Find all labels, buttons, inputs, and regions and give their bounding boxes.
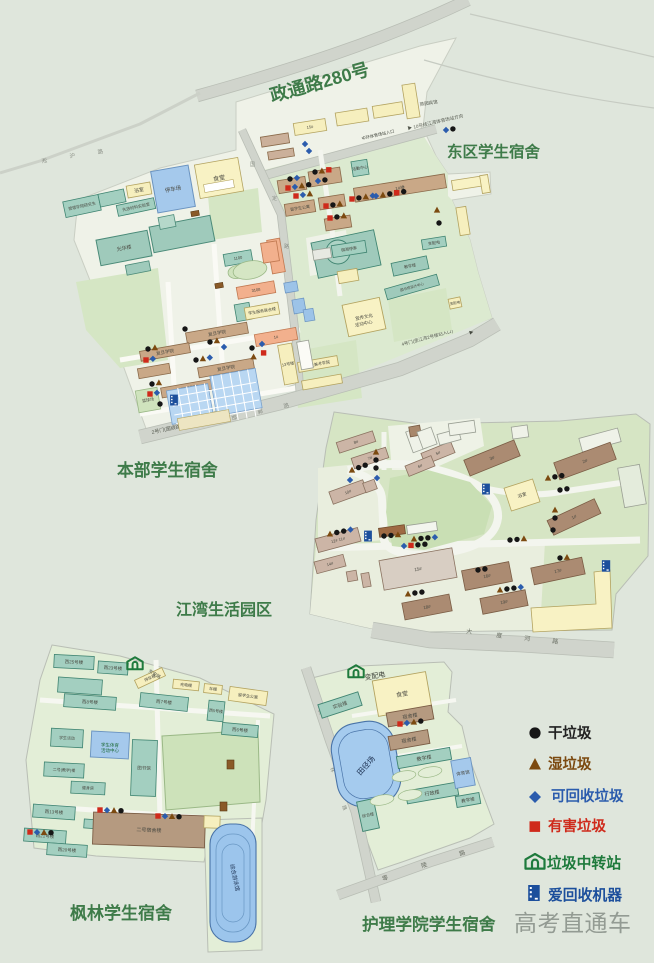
- svg-text:二号(教学)楼: 二号(教学)楼: [53, 766, 76, 773]
- svg-text:定: 定: [272, 195, 277, 202]
- svg-text:车棚: 车棚: [209, 685, 218, 692]
- svg-text:本部学生宿舍: 本部学生宿舍: [117, 460, 218, 480]
- svg-text:路: 路: [284, 243, 289, 250]
- svg-text:健身房: 健身房: [82, 784, 94, 791]
- svg-text:二号宿舍楼: 二号宿舍楼: [136, 826, 161, 834]
- svg-text:充电棚: 充电棚: [180, 681, 193, 688]
- svg-text:护理学院学生宿舍: 护理学院学生宿舍: [362, 914, 496, 934]
- svg-text:垃圾中转站: 垃圾中转站: [547, 854, 621, 872]
- svg-text:可回收垃圾: 可回收垃圾: [551, 787, 624, 805]
- svg-text:有害垃圾: 有害垃圾: [548, 817, 606, 835]
- svg-text:枫林学生宿舍: 枫林学生宿舍: [70, 903, 172, 923]
- svg-text:干垃圾: 干垃圾: [548, 724, 592, 742]
- svg-text:国: 国: [250, 162, 255, 168]
- svg-text:高考直通车: 高考直通车: [514, 910, 632, 936]
- svg-text:爱回收机器: 爱回收机器: [548, 886, 623, 904]
- svg-text:湿垃圾: 湿垃圾: [548, 755, 592, 773]
- svg-text:学生活动: 学生活动: [59, 734, 75, 741]
- svg-text:活动中心: 活动中心: [101, 747, 119, 754]
- svg-text:江湾生活园区: 江湾生活园区: [176, 600, 272, 619]
- svg-text:东区学生宿舍: 东区学生宿舍: [447, 142, 541, 161]
